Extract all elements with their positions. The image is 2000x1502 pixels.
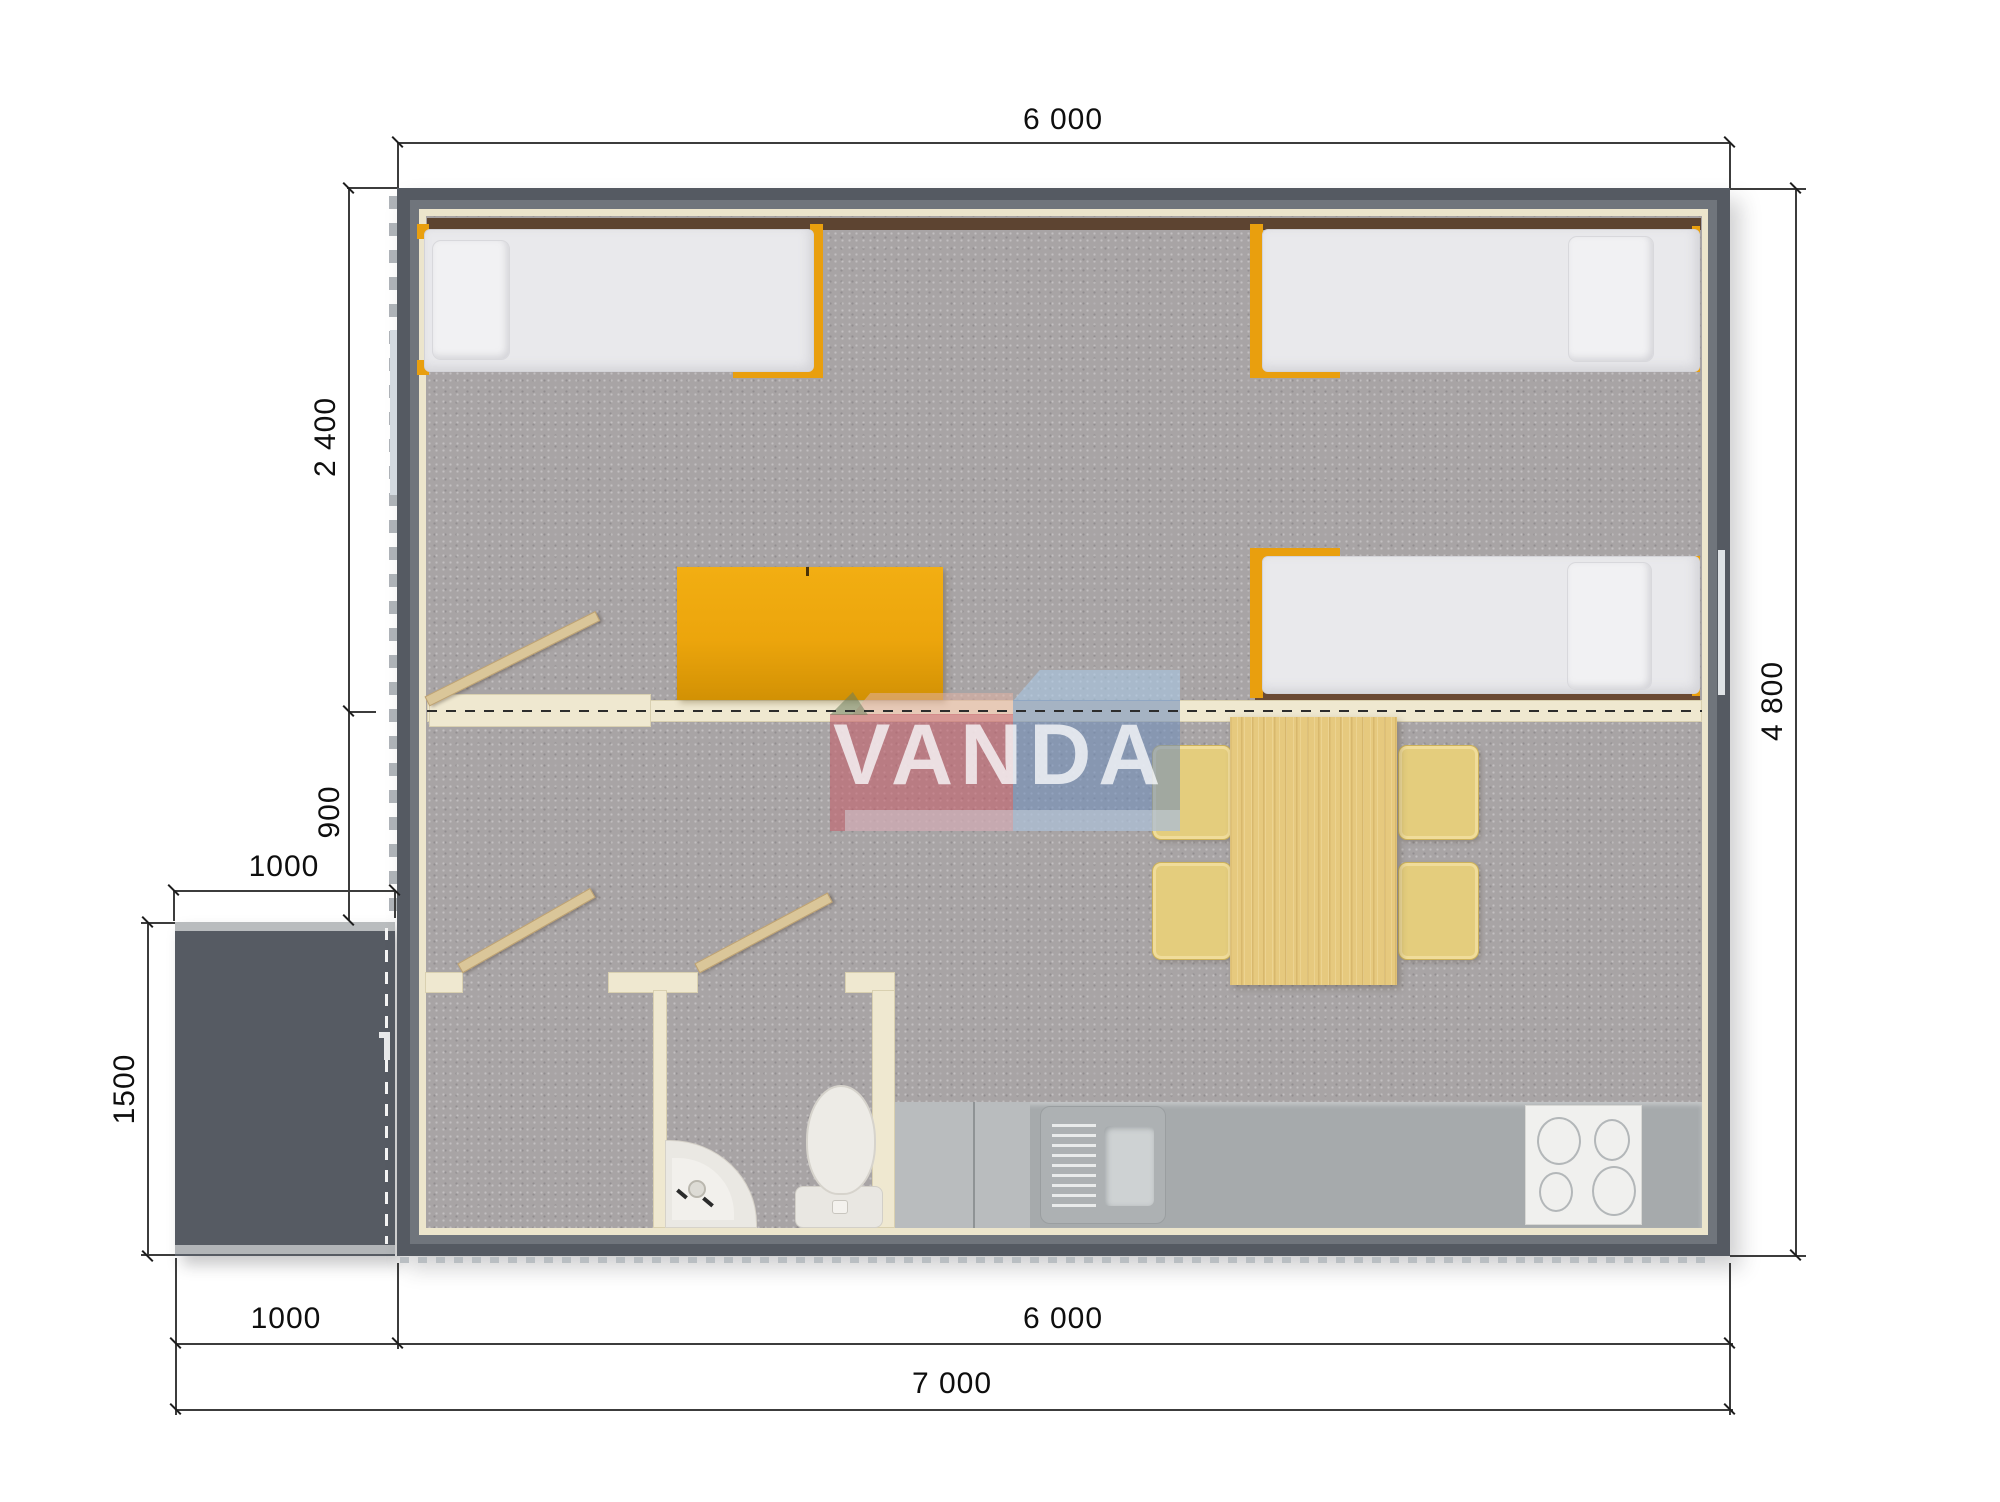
kitchen-sink-drainboard (1052, 1124, 1096, 1208)
dim-ext (1729, 142, 1731, 188)
dim-label-bottom-porch: 1000 (251, 1302, 322, 1336)
floor-plan-canvas: VANDA 6 000 2 400 900 1000 1500 (0, 0, 2000, 1502)
wardrobe (677, 567, 943, 700)
dim-ext (347, 187, 397, 189)
burner-bottom-right (1592, 1166, 1636, 1216)
dim-line-bottom-total (175, 1409, 1733, 1411)
kitchen-counter-left-cabinet (895, 1102, 1030, 1228)
bed-1-pillow (432, 240, 510, 360)
burner-top-left (1537, 1117, 1581, 1165)
left-wall-hatch-dashes (389, 196, 397, 920)
partition-dashed-section-line (427, 710, 1702, 712)
left-wall-window (390, 330, 397, 495)
bottom-wall-hatch-dashes (400, 1257, 1710, 1263)
dim-ext (397, 1263, 399, 1349)
dim-line-bottom-split (175, 1343, 1733, 1345)
dim-label-porch-depth: 1500 (108, 1054, 142, 1125)
dim-label-bottom-total: 7 000 (912, 1367, 992, 1401)
dim-label-bedroom-depth: 2 400 (309, 397, 343, 477)
dim-label-bottom-house: 6 000 (1023, 1302, 1103, 1336)
chair-top-right (1398, 745, 1479, 840)
entry-door-dashed-line (385, 928, 388, 1244)
dim-line-porch-depth (147, 922, 149, 1256)
dim-line-porch-width-upper (173, 890, 395, 892)
watermark-light-band (845, 810, 1180, 831)
wardrobe-key-mark (806, 567, 809, 576)
right-wall-window (1718, 550, 1725, 695)
dim-label-total-depth: 4 800 (1756, 661, 1790, 741)
dim-ext (348, 711, 376, 713)
dim-line-bedroom-depth (348, 188, 350, 711)
sink-faucet (688, 1180, 706, 1198)
dim-label-porch-width-upper: 1000 (249, 850, 320, 884)
bed-3-pillow (1567, 562, 1652, 690)
toilet-flush-button (832, 1200, 848, 1214)
kitchen-sink-basin (1104, 1126, 1154, 1206)
porch-deck (175, 922, 395, 1256)
dim-label-middle-depth: 900 (313, 785, 347, 838)
dim-ext (397, 142, 399, 188)
dim-ext (173, 890, 175, 921)
kitchen-counter-seam (973, 1102, 975, 1228)
porch-top-edge (175, 922, 395, 931)
dim-ext (175, 1258, 177, 1415)
watermark-text: VANDA (833, 712, 1167, 798)
dim-line-total-depth (1795, 188, 1797, 1256)
bathroom-wall-left-segment (425, 972, 463, 993)
burner-bottom-left (1539, 1172, 1573, 1212)
bed-2-pillow (1568, 236, 1654, 362)
dim-label-top-width: 6 000 (1023, 103, 1103, 137)
dim-line-top-width (397, 142, 1730, 144)
dim-ext (1729, 1263, 1731, 1415)
toilet-seat (806, 1085, 876, 1195)
dining-table (1230, 717, 1397, 985)
entry-door-handle-nub (379, 1032, 385, 1038)
dim-ext (394, 890, 396, 918)
chair-bottom-right (1398, 862, 1479, 960)
chair-bottom-left (1152, 862, 1232, 960)
burner-top-right (1594, 1119, 1630, 1161)
watermark-blue-top-face (1013, 670, 1180, 701)
dim-line-middle-depth (348, 711, 350, 920)
porch-bottom-edge (175, 1245, 395, 1254)
